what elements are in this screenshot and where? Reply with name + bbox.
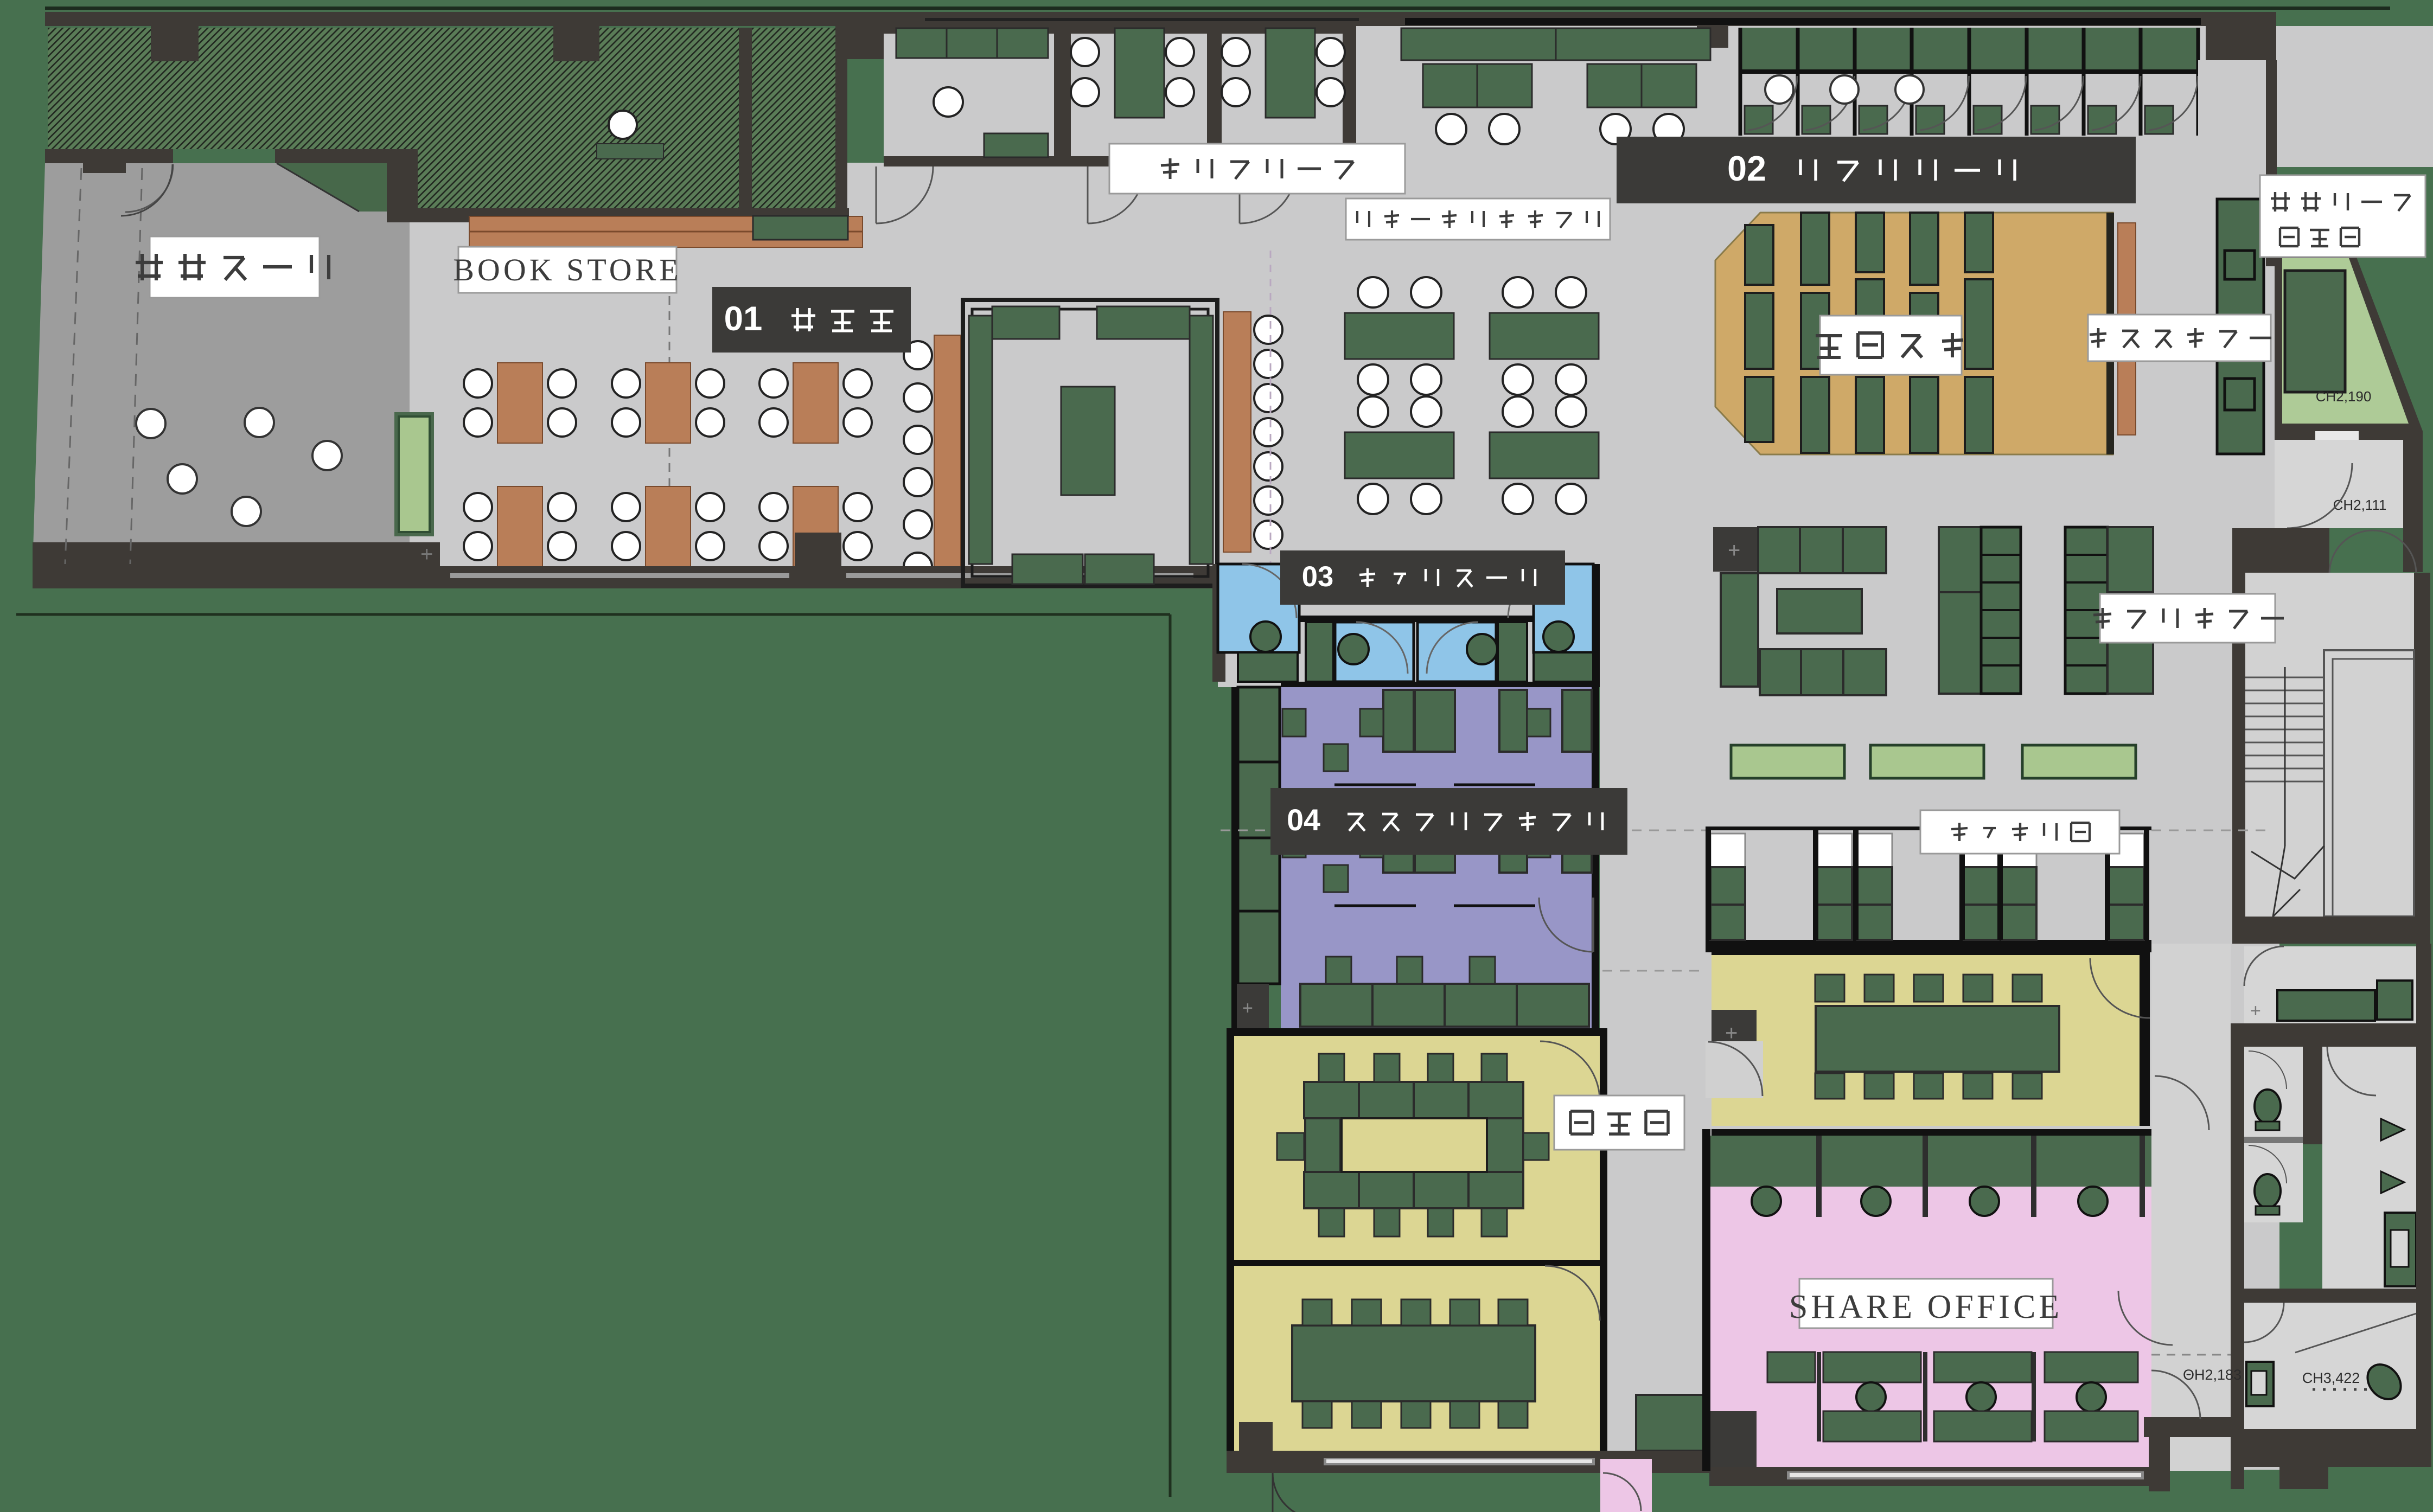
svg-text:01: 01	[724, 299, 763, 338]
svg-text:CH3,422: CH3,422	[2302, 1370, 2360, 1386]
svg-text:03: 03	[1302, 561, 1333, 593]
svg-text:02: 02	[1727, 149, 1766, 188]
svg-text:ΘH2,183: ΘH2,183	[2183, 1367, 2242, 1383]
svg-text:+: +	[1242, 998, 1253, 1018]
svg-text:04: 04	[1287, 803, 1320, 837]
svg-text:+: +	[2250, 1001, 2261, 1021]
svg-text:+: +	[420, 542, 433, 566]
svg-text:SHARE OFFICE: SHARE OFFICE	[1789, 1289, 2062, 1325]
svg-text:CH2,190: CH2,190	[2316, 388, 2372, 405]
svg-text:+: +	[1728, 539, 1740, 562]
svg-text:BOOK STORE: BOOK STORE	[453, 252, 681, 287]
